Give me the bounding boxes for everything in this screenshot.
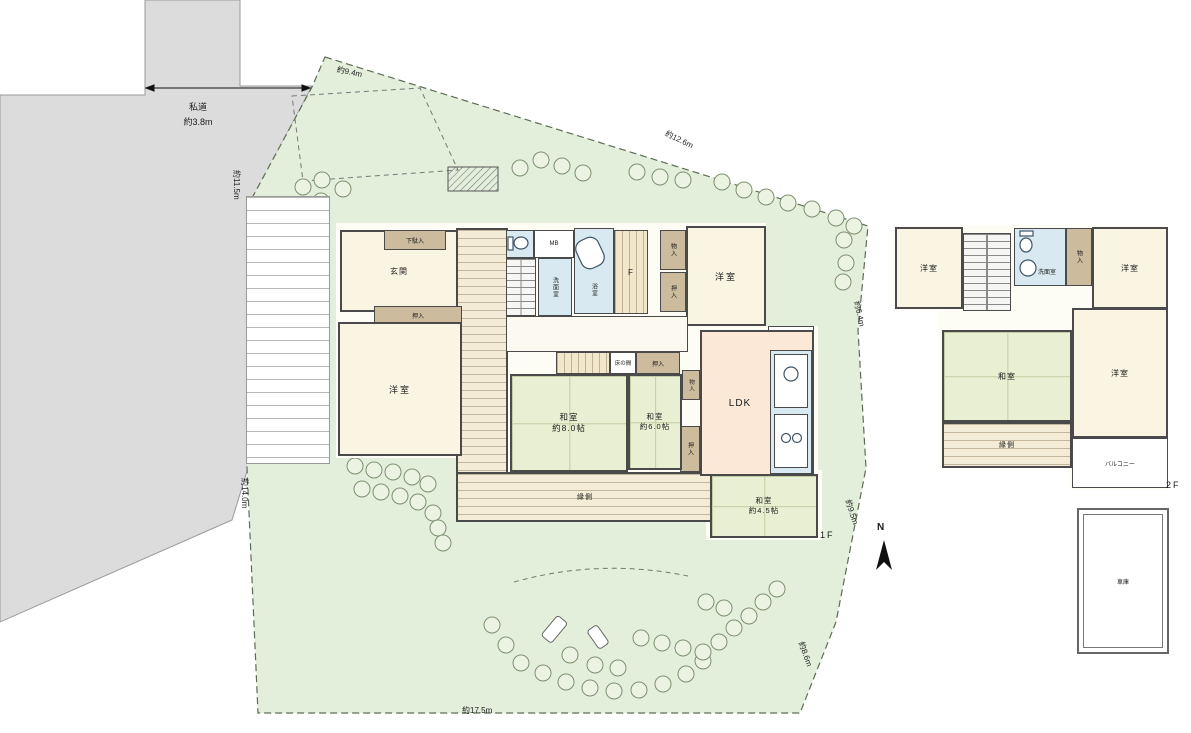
tree-icon — [498, 637, 514, 653]
tree-icon — [804, 201, 820, 217]
western-e-2f-label: 洋室 — [1111, 368, 1129, 379]
closet-label: 押入 — [686, 442, 695, 456]
tree-icon — [554, 158, 570, 174]
tokonoma-alcove-floor — [556, 352, 610, 374]
tree-icon — [295, 179, 311, 195]
free-room-label: F — [628, 268, 634, 277]
storage-label: 物入 — [669, 243, 678, 257]
washitsu6-name: 和室 — [647, 412, 664, 422]
tree-icon — [695, 644, 711, 660]
tree-icon — [629, 164, 645, 180]
washroom-2f: 洗面室 — [1014, 228, 1066, 286]
tree-icon — [736, 182, 752, 198]
tree-icon — [678, 666, 694, 682]
tree-icon — [711, 634, 727, 650]
closet-label: 押入 — [652, 359, 664, 368]
room-western-w: 洋室 — [338, 322, 462, 456]
tree-icon — [714, 174, 730, 190]
tree-icon — [631, 682, 647, 698]
tree-icon — [366, 462, 382, 478]
tree-icon — [513, 655, 529, 671]
tree-icon — [846, 218, 862, 234]
room-2f-western-e: 洋室 — [1072, 308, 1168, 438]
tree-icon — [420, 476, 436, 492]
washitsu45-size: 約4.5帖 — [749, 506, 779, 516]
tree-icon — [435, 535, 451, 551]
dim-left-upper: 約11.5m — [231, 170, 242, 200]
road-label: 私道 約3.8m — [156, 100, 240, 131]
shoe-cabinet: 下駄入 — [384, 230, 446, 250]
tree-icon — [836, 232, 852, 248]
garage-label: 車庫 — [1117, 577, 1129, 586]
tree-icon — [755, 594, 771, 610]
storage-2f: 物入 — [1066, 228, 1092, 286]
tree-icon — [314, 172, 330, 188]
washroom-2f-label: 洗面室 — [1038, 267, 1056, 276]
tree-icon — [484, 617, 500, 633]
tokonoma-alcove: 床の間 — [610, 352, 636, 374]
stairs-2f — [963, 233, 1011, 311]
tree-icon — [610, 660, 626, 676]
room-washitsu-6: 和室 約6.0帖 — [628, 374, 682, 470]
garage: 車庫 — [1077, 508, 1169, 654]
tree-icon — [654, 635, 670, 651]
tree-icon — [655, 676, 671, 692]
room-2f-western-ne: 洋室 — [1092, 227, 1168, 309]
tree-icon — [430, 520, 446, 536]
tree-icon — [633, 630, 649, 646]
room-washitsu-45: 和室 約4.5帖 — [710, 474, 818, 538]
floor-plan-canvas: 縁側 玄関 下駄入 MB 洗面室 浴室 F 物入 押入 洋室 勝手口 LDK 物… — [0, 0, 1191, 733]
floor1-label: 1F — [820, 530, 835, 540]
bathroom-label: 浴室 — [590, 283, 599, 297]
washitsu8-name: 和室 — [559, 412, 578, 423]
road-width: 約3.8m — [156, 115, 240, 130]
kitchen-counter — [774, 354, 808, 408]
stone-approach-path — [246, 196, 330, 464]
tokonoma-label: 床の間 — [615, 359, 632, 367]
tree-icon — [828, 210, 844, 226]
meter-box-label: MB — [550, 241, 559, 247]
tree-icon — [838, 255, 854, 271]
shoe-cabinet-label: 下駄入 — [406, 236, 424, 245]
room-washitsu-8: 和室 約8.0帖 — [510, 374, 628, 472]
closet-label: 押入 — [669, 285, 678, 299]
room-2f-western-nw: 洋室 — [895, 227, 963, 309]
tree-icon — [558, 674, 574, 690]
tree-icon — [512, 160, 528, 176]
tree-icon — [410, 494, 426, 510]
tree-icon — [425, 505, 441, 521]
western-w-label: 洋室 — [389, 383, 411, 396]
washroom-1f: 洗面室 — [538, 258, 572, 316]
adjacent-parcel-border — [0, 0, 145, 95]
western-nw-label: 洋室 — [920, 263, 938, 274]
tree-icon — [780, 195, 796, 211]
tree-icon — [392, 488, 408, 504]
tree-icon — [758, 189, 774, 205]
oshiire-closet: 押入 — [660, 272, 686, 312]
road-name: 私道 — [156, 100, 240, 115]
tree-icon — [373, 484, 389, 500]
tree-icon — [535, 665, 551, 681]
washitsu6-size: 約6.0帖 — [640, 422, 670, 432]
storage-2f-label: 物入 — [1075, 250, 1084, 264]
tree-icon — [562, 647, 578, 663]
genkan-label: 玄関 — [390, 266, 408, 277]
tree-icon — [698, 594, 714, 610]
north-label: N — [877, 522, 884, 533]
western-ne-label: 洋室 — [715, 270, 737, 283]
oshiire-closet: 押入 — [680, 426, 700, 472]
tree-icon — [385, 464, 401, 480]
room-western-ne: 洋室 — [686, 226, 766, 326]
tree-icon — [769, 581, 785, 597]
balcony: バルコニー — [1072, 438, 1168, 488]
oshiire-closet: 押入 — [636, 352, 680, 374]
tree-icon — [335, 181, 351, 197]
bathroom: 浴室 — [574, 228, 614, 314]
tree-icon — [741, 608, 757, 624]
engawa-label: 縁側 — [577, 492, 593, 502]
western-ne-2f-label: 洋室 — [1121, 263, 1139, 274]
shed — [448, 167, 498, 191]
dim-bottom: 約17.5m — [462, 705, 492, 716]
storage-small-label: 物入 — [687, 379, 695, 392]
toilet-room-1f — [506, 230, 534, 258]
closet-label: 押入 — [412, 311, 424, 320]
dim-left-lower: 約14.0m — [239, 478, 250, 508]
tree-icon — [347, 458, 363, 474]
washitsu-2f-label: 和室 — [998, 371, 1016, 382]
tree-icon — [726, 620, 742, 636]
ldk-label: LDK — [729, 398, 751, 409]
tree-icon — [675, 172, 691, 188]
tree-icon — [575, 165, 591, 181]
corridor — [506, 316, 688, 352]
tree-icon — [533, 152, 549, 168]
room-2f-washitsu: 和室 — [942, 330, 1072, 422]
garage-inner-outline: 車庫 — [1083, 514, 1163, 648]
engawa-2f: 縁側 — [942, 422, 1072, 468]
tree-icon — [835, 274, 851, 290]
engawa-2f-label: 縁側 — [999, 440, 1015, 450]
tree-icon — [587, 657, 603, 673]
balcony-label: バルコニー — [1105, 459, 1135, 468]
stairs-1f — [506, 258, 536, 316]
storage-closet: 物入 — [660, 230, 686, 270]
storage-small: 物入 — [682, 370, 700, 400]
washroom-label: 洗面室 — [551, 277, 560, 298]
tree-icon — [675, 640, 691, 656]
washitsu45-name: 和室 — [756, 496, 773, 506]
tree-icon — [652, 169, 668, 185]
tree-icon — [354, 481, 370, 497]
free-room: F — [614, 230, 648, 314]
tree-icon — [606, 683, 622, 699]
washitsu8-size: 約8.0帖 — [552, 423, 586, 434]
floor2-label: 2F — [1166, 480, 1181, 490]
meter-box: MB — [534, 230, 574, 258]
kitchen-counter — [774, 414, 808, 468]
tree-icon — [404, 469, 420, 485]
engawa-veranda: 縁側 — [456, 472, 714, 522]
tree-icon — [582, 680, 598, 696]
tree-icon — [716, 600, 732, 616]
